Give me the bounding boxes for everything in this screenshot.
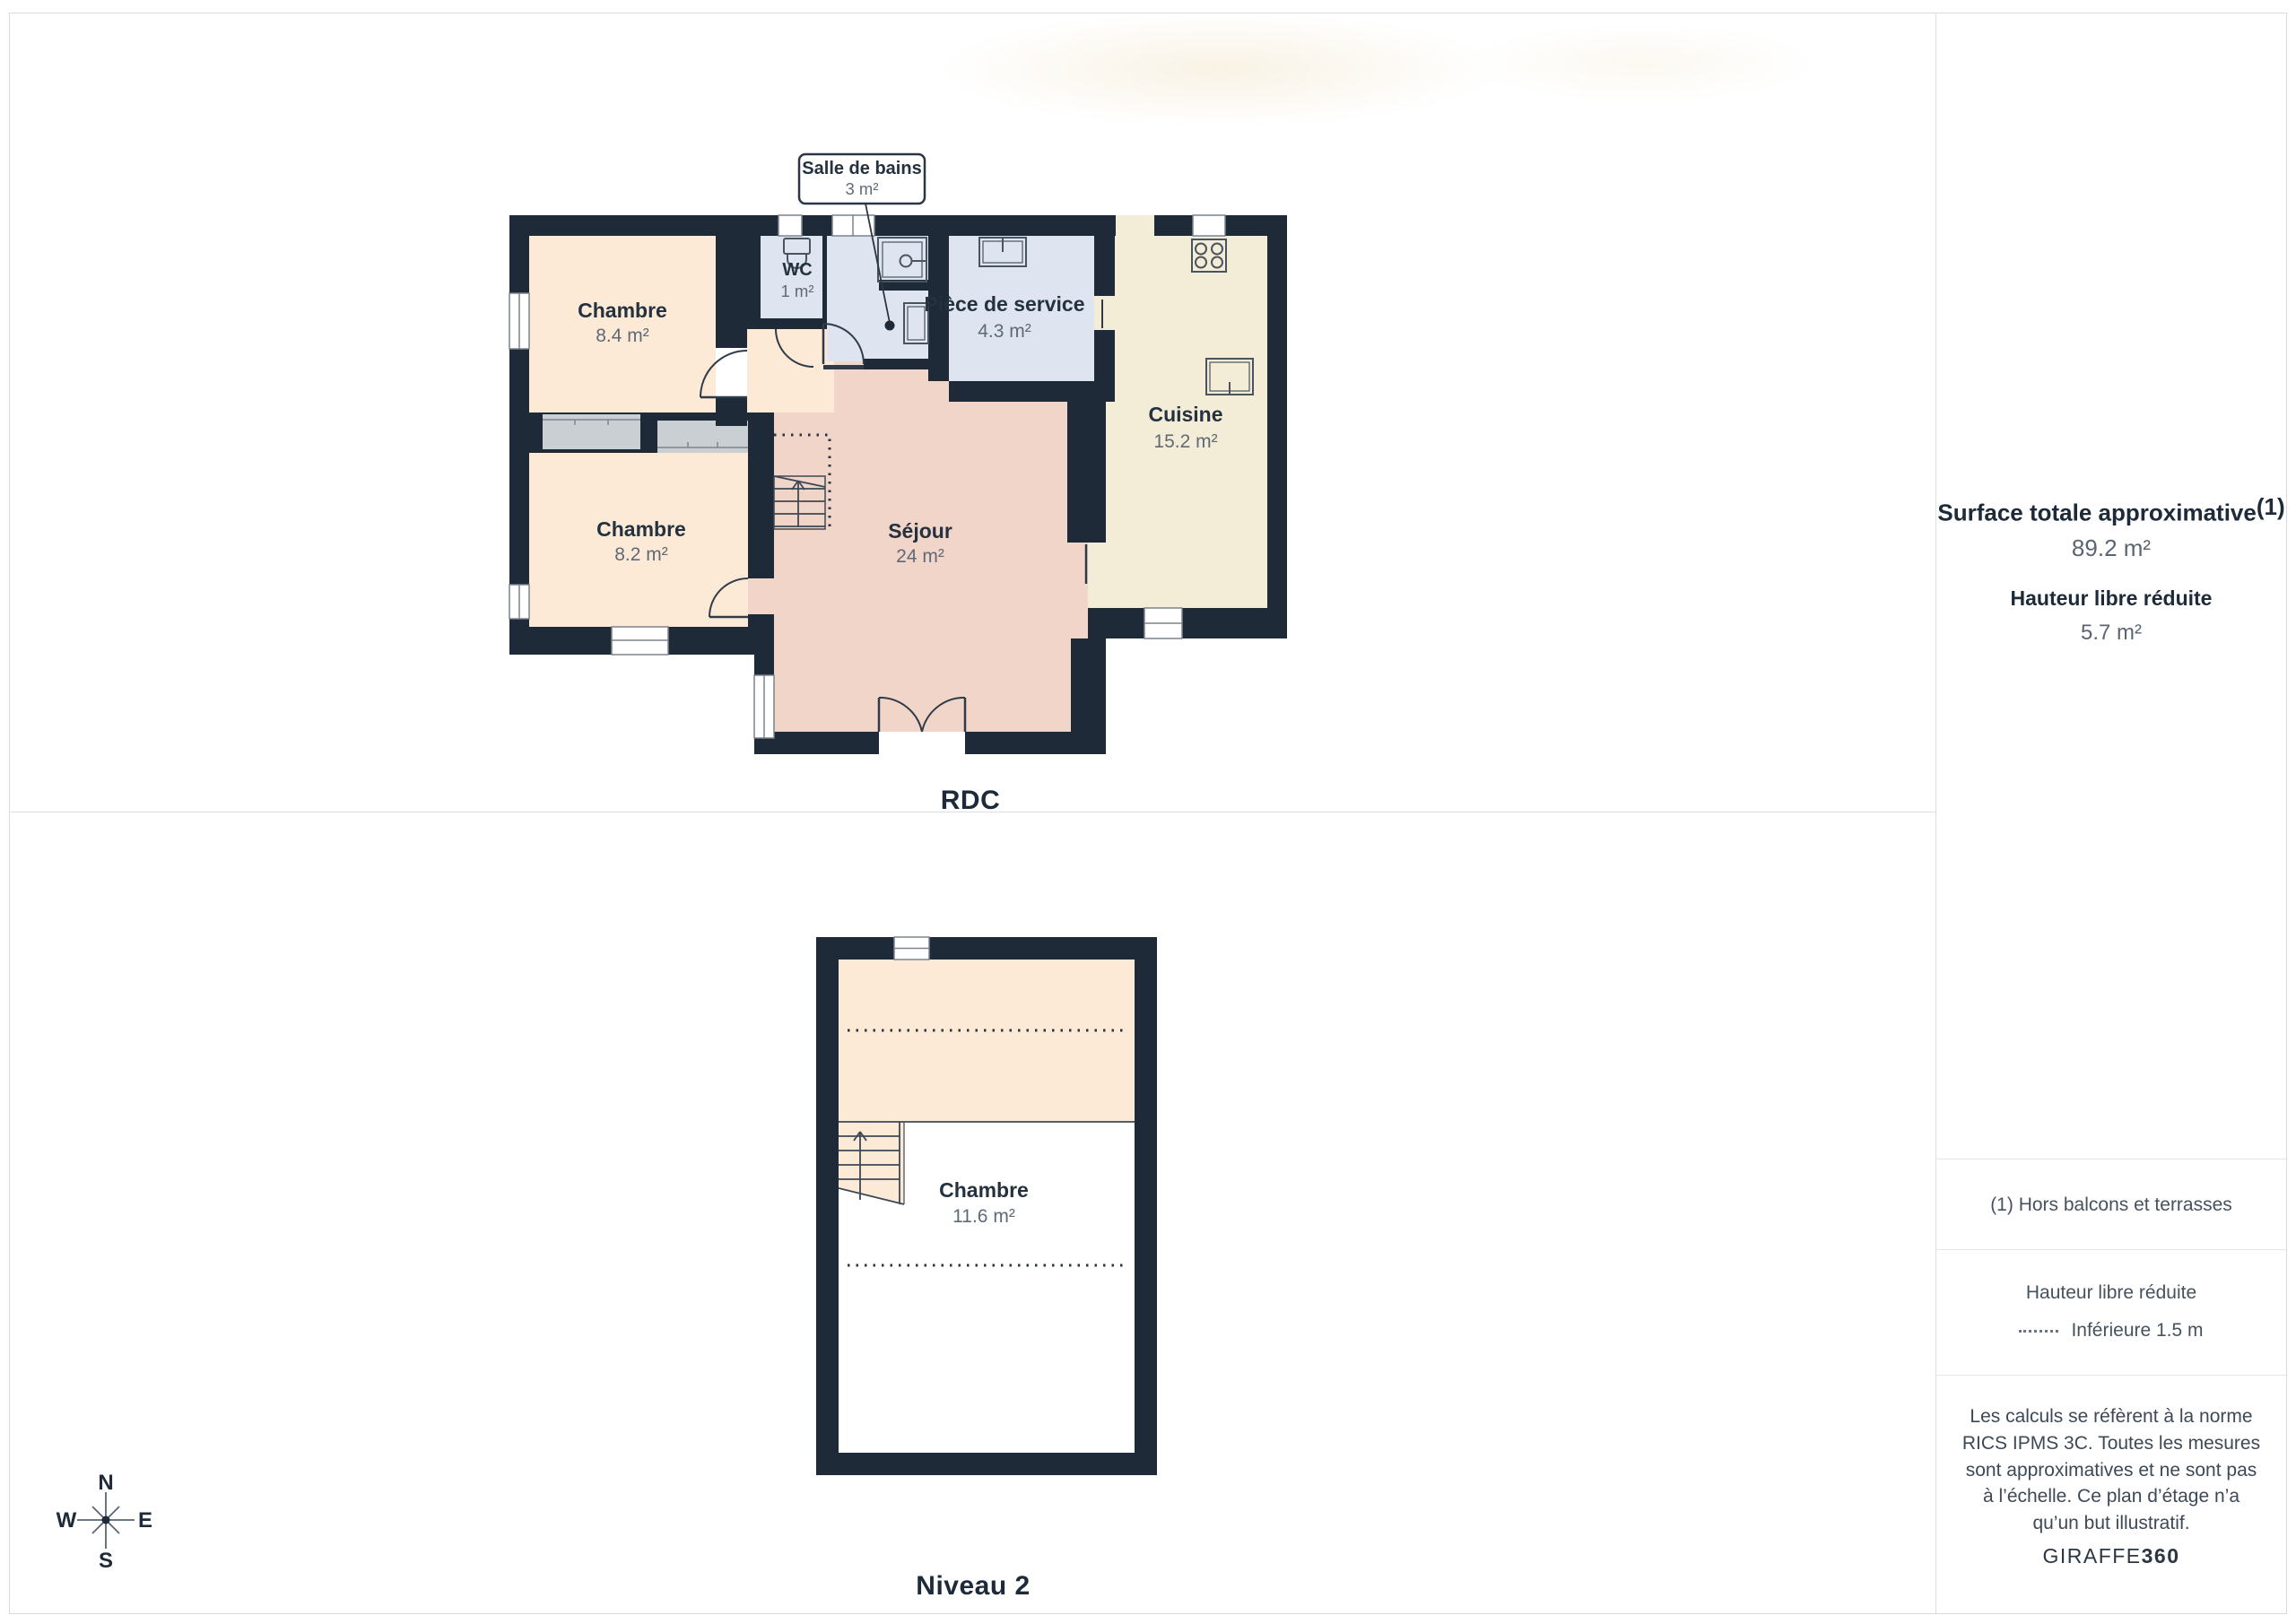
floorplan-page: Salle de bains 3 m² Chambre 8.4 m² Chamb… — [0, 0, 2296, 1624]
page-border — [9, 13, 2287, 1614]
floors-divider — [9, 812, 1935, 812]
sidebar-left-divider — [1935, 13, 1936, 1613]
